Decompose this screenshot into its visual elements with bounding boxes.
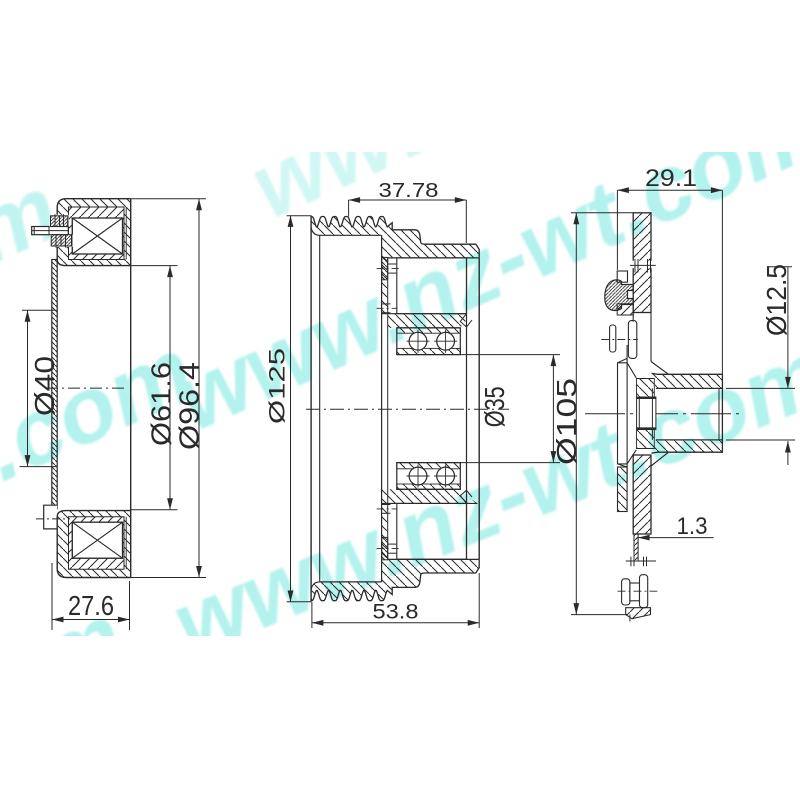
svg-text:27.6: 27.6 <box>68 590 114 621</box>
svg-text:Ø61.6: Ø61.6 <box>146 362 177 446</box>
svg-text:29.1: 29.1 <box>645 165 697 192</box>
svg-text:37.78: 37.78 <box>379 180 439 202</box>
svg-text:Ø105: Ø105 <box>551 378 582 465</box>
svg-text:1.3: 1.3 <box>677 513 708 540</box>
svg-text:53.8: 53.8 <box>373 601 419 624</box>
svg-text:Ø40: Ø40 <box>29 356 60 416</box>
svg-text:Ø35: Ø35 <box>479 386 510 427</box>
svg-text:Ø12.5: Ø12.5 <box>761 264 792 336</box>
svg-text:Ø96.4: Ø96.4 <box>174 362 205 450</box>
svg-text:Ø125: Ø125 <box>265 348 290 424</box>
